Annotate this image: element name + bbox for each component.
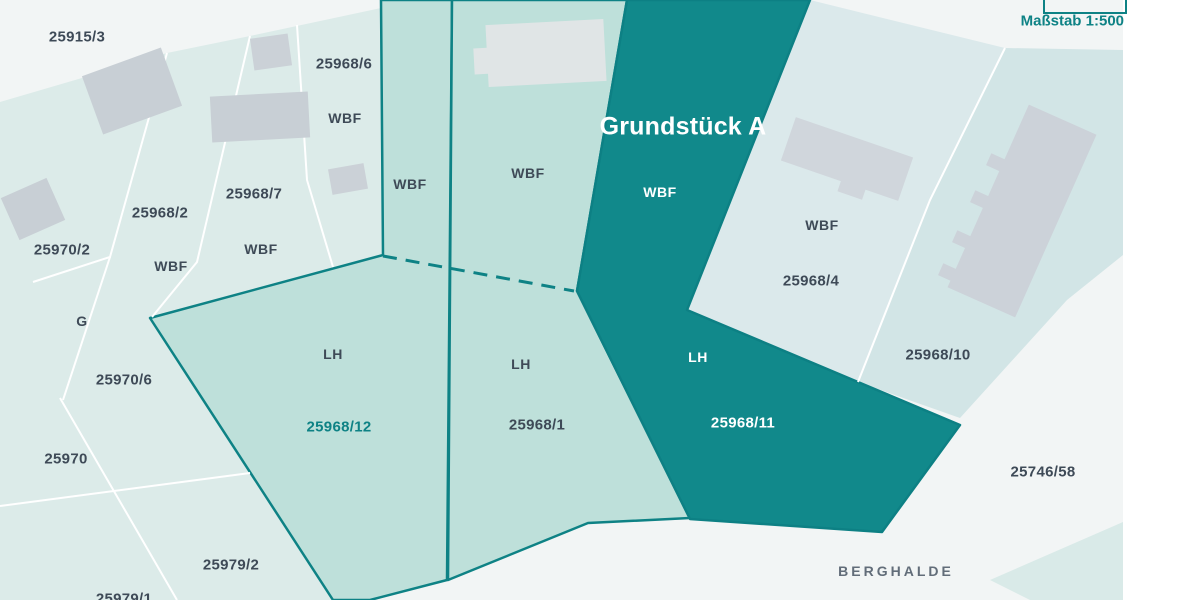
parcel-label-25979-1: 25979/1 [96, 591, 152, 600]
usage-label-wbf: WBF [643, 184, 676, 200]
parcel-label-25968-6: 25968/6 [316, 56, 372, 73]
usage-label-g: G [76, 313, 87, 329]
parcel-label-25968-7: 25968/7 [226, 186, 282, 203]
parcel-bottom-right-shape [990, 522, 1123, 600]
building [250, 34, 292, 71]
map-right-margin [1123, 0, 1200, 600]
parcel-label-25968-1: 25968/1 [509, 417, 565, 434]
building [210, 91, 310, 142]
building [473, 48, 492, 75]
parcel-label-25970-2: 25970/2 [34, 242, 90, 259]
scale-label: Maßstab 1:500 [1021, 13, 1124, 30]
parcel-label-25970: 25970 [44, 451, 87, 468]
usage-label-wbf: WBF [328, 110, 361, 126]
street-name-berghalde: BERGHALDE [838, 563, 954, 579]
parcel-label-25968-11: 25968/11 [711, 415, 775, 432]
parcel-label-25970-6: 25970/6 [96, 372, 152, 389]
parcel-label-25968-10: 25968/10 [906, 347, 971, 364]
usage-label-wbf: WBF [244, 241, 277, 257]
usage-label-wbf: WBF [511, 165, 544, 181]
cadastral-map: KÜHHALDE BERGHALDE 25915/3 25968/6 25968… [0, 0, 1200, 600]
parcel-label-25979-2: 25979/2 [203, 557, 259, 574]
usage-label-wbf: WBF [805, 217, 838, 233]
parcel-label-25968-4: 25968/4 [783, 273, 839, 290]
building [485, 19, 606, 87]
usage-label-lh: LH [323, 346, 343, 362]
parcel-label-25968-2: 25968/2 [132, 205, 188, 222]
usage-label-wbf: WBF [154, 258, 187, 274]
parcel-label-25915-3: 25915/3 [49, 29, 105, 46]
parcel-label-25746-58: 25746/58 [1011, 464, 1076, 481]
parcel-label-25968-12: 25968/12 [307, 419, 372, 436]
highlight-parcel-title: Grundstück A [600, 113, 767, 142]
usage-label-wbf: WBF [393, 176, 426, 192]
usage-label-lh: LH [688, 349, 708, 365]
usage-label-lh: LH [511, 356, 531, 372]
